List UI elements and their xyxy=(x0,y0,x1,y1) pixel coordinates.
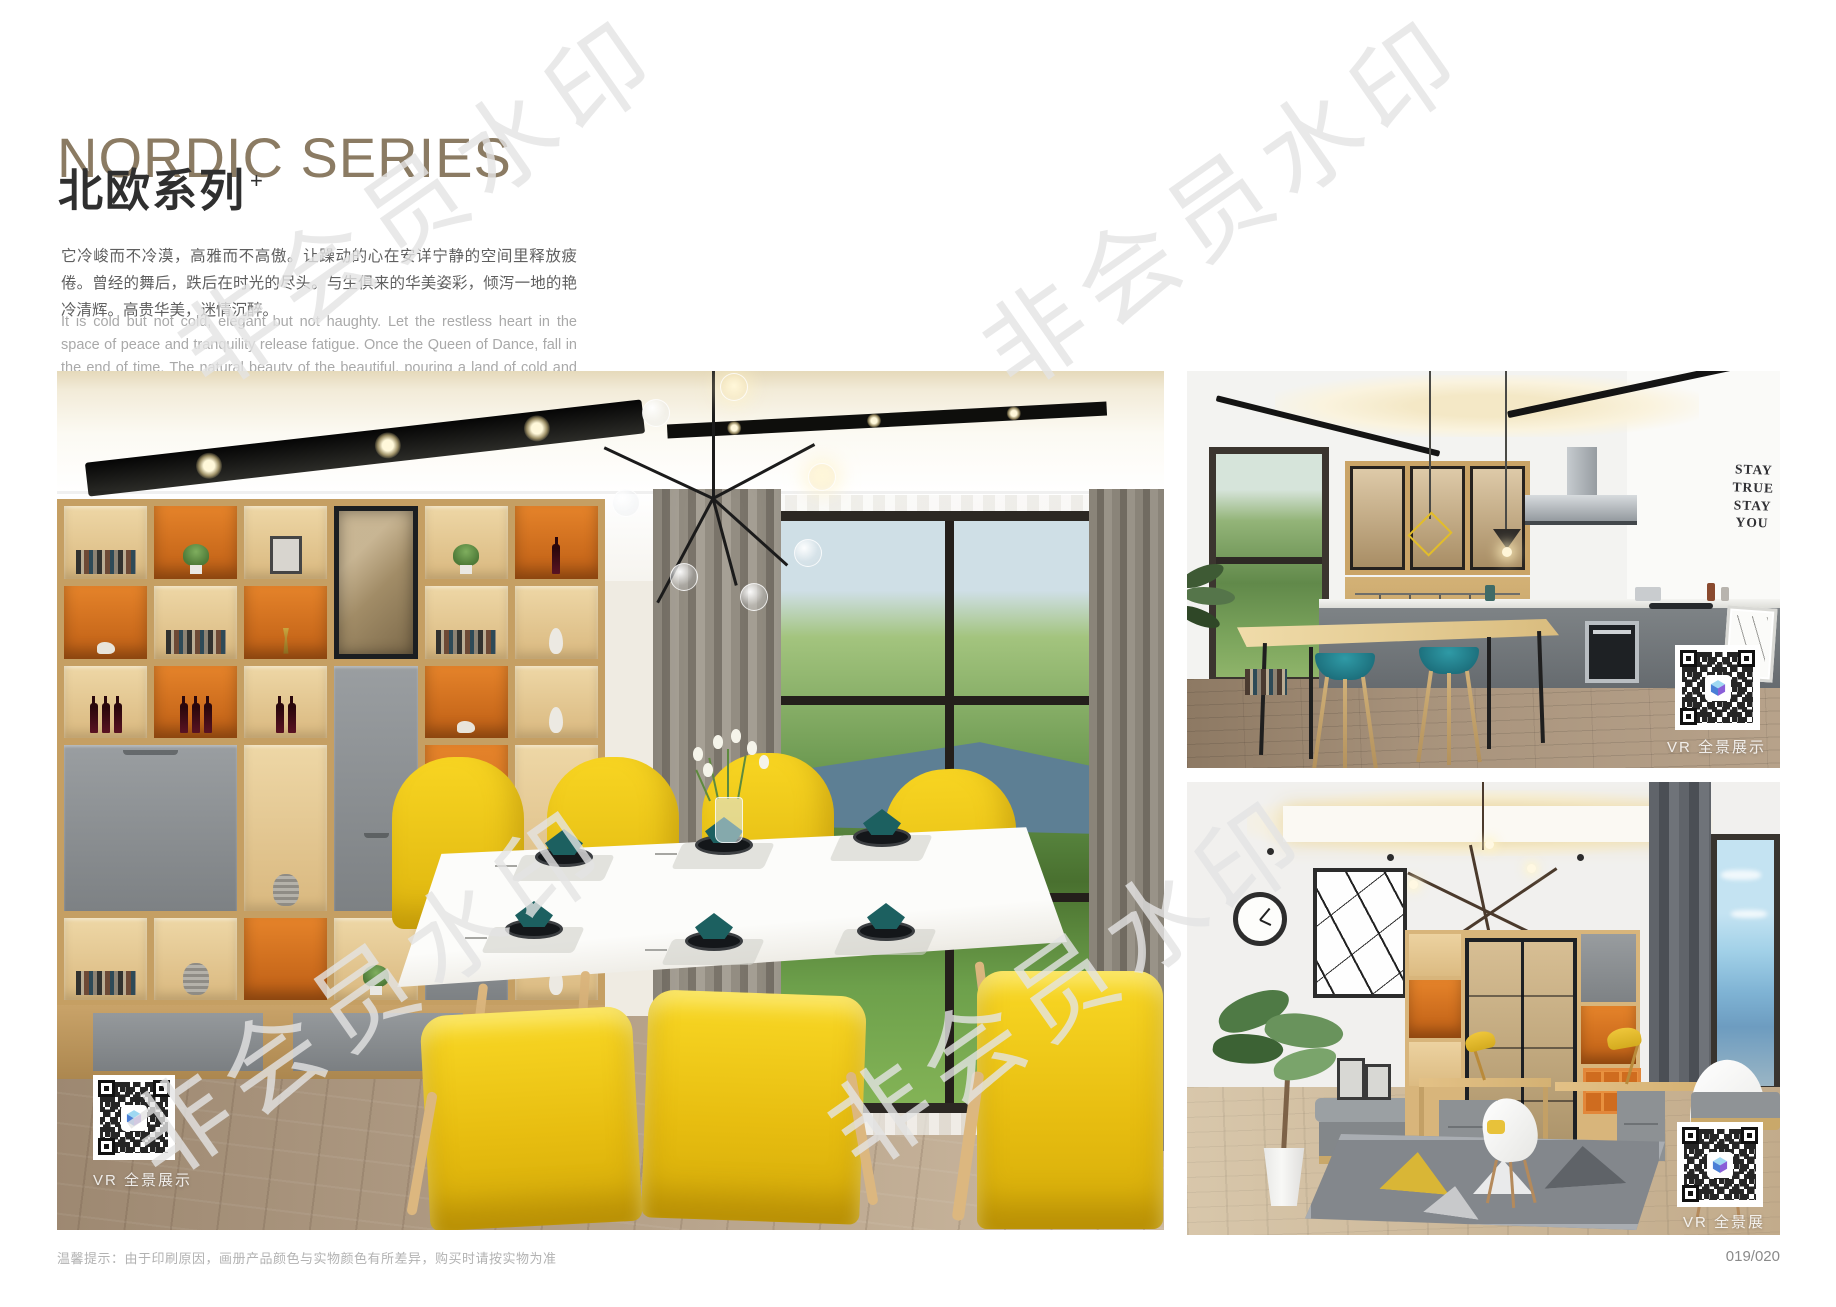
glass-bulb xyxy=(808,463,836,491)
shelf-cell xyxy=(64,506,147,579)
potted-plant xyxy=(453,544,479,566)
watermark: 非会员水印 xyxy=(967,3,1483,406)
desk xyxy=(1555,1082,1707,1091)
counter-jar xyxy=(1721,587,1729,601)
white-flower xyxy=(747,741,757,755)
wine-bottle xyxy=(102,703,110,733)
page-number: 019/020 xyxy=(1690,1248,1780,1265)
table-leg xyxy=(1487,637,1491,749)
qr-finder-icon xyxy=(98,1138,115,1155)
qr-finder-icon xyxy=(98,1080,115,1097)
glass-bulb xyxy=(794,539,822,567)
ceiling-panel xyxy=(1283,806,1677,842)
wall-art-line: STAY xyxy=(1726,496,1779,516)
shelf-cell xyxy=(425,586,508,659)
bulb xyxy=(1527,864,1536,873)
shelf-cell xyxy=(425,506,508,579)
vr-qr-code xyxy=(1677,1122,1763,1207)
white-flower xyxy=(703,763,713,777)
vr-qr-code xyxy=(93,1075,175,1160)
white-flower xyxy=(731,729,741,743)
spotlight xyxy=(1267,848,1274,855)
vr-cube-icon xyxy=(121,1105,147,1131)
cooktop xyxy=(1649,603,1713,609)
shelf-cell xyxy=(64,918,147,1000)
dark-gray-curtain xyxy=(1649,782,1711,1094)
shelf-cell xyxy=(1409,934,1461,976)
clock-hand xyxy=(1260,919,1272,926)
bulb xyxy=(1409,880,1418,889)
vr-caption: VR 全景展示 xyxy=(1667,736,1766,757)
trophy-decor xyxy=(281,628,291,654)
shelf-cell xyxy=(515,666,598,739)
glass-display-cabinet xyxy=(334,506,417,659)
potted-plant xyxy=(363,965,389,987)
wall-clock xyxy=(1233,892,1287,946)
photo-kitchen: STAY TRUE STAY YOU xyxy=(1187,371,1780,768)
yellow-armchair xyxy=(977,971,1163,1229)
shelf-cell xyxy=(244,918,327,1000)
wine-bottle xyxy=(204,703,212,733)
cabinet-shelf xyxy=(1469,995,1573,997)
photo-frame xyxy=(270,536,302,574)
books xyxy=(76,550,136,574)
spotlight xyxy=(1577,854,1584,861)
flower-stem xyxy=(727,749,729,799)
wall-art-line: STAY xyxy=(1728,460,1780,480)
qr-finder-icon xyxy=(1741,1127,1758,1144)
books xyxy=(166,630,226,654)
shelf-cell xyxy=(154,586,237,659)
wine-bottle xyxy=(288,703,296,733)
geometric-rug xyxy=(1305,1134,1665,1230)
qr-finder-icon xyxy=(1680,650,1697,667)
subtitle-plus: + xyxy=(250,168,265,193)
wine-bottle xyxy=(114,703,122,733)
shelf-cell xyxy=(425,666,508,739)
rug-triangle xyxy=(1542,1143,1627,1189)
shelf-books xyxy=(1245,669,1287,695)
white-flower xyxy=(759,755,769,769)
glass-bulb xyxy=(720,373,748,401)
white-flower xyxy=(693,747,703,761)
cutlery xyxy=(655,853,677,855)
qr-finder-icon xyxy=(153,1080,170,1097)
shelf-cell xyxy=(244,745,327,910)
glass-cabinet-door xyxy=(1470,466,1525,570)
glass-bulb xyxy=(740,583,768,611)
glass-cabinet-door xyxy=(1350,466,1405,570)
glass-bulb xyxy=(670,563,698,591)
white-flower xyxy=(713,735,723,749)
shelf-cell xyxy=(154,666,237,739)
yellow-cushion xyxy=(1487,1120,1505,1134)
yellow-dining-chair xyxy=(420,1006,643,1230)
glass-bulb xyxy=(642,399,670,427)
white-vase xyxy=(549,707,563,733)
catalog-page: NORDIC SERIES 北欧系列+ 它冷峻而不冷漠，高雅而不高傲。让躁动的心… xyxy=(0,0,1836,1307)
cloud xyxy=(1731,910,1767,918)
pendant-lamp xyxy=(1493,529,1521,549)
wine-bottle xyxy=(90,703,98,733)
study-window xyxy=(1711,834,1780,1092)
page-subtitle: 北欧系列+ xyxy=(58,168,265,213)
qr-finder-icon xyxy=(1682,1185,1699,1202)
gray-cabinet-door xyxy=(64,745,237,910)
shelf-cell xyxy=(244,666,327,739)
cutlery xyxy=(645,949,667,951)
shelf-cell xyxy=(515,506,598,579)
white-vase xyxy=(549,628,563,654)
ceramic-jar xyxy=(273,874,299,906)
leaning-frame xyxy=(1365,1064,1391,1100)
qr-finder-icon xyxy=(1738,650,1755,667)
orange-shelf-cell xyxy=(1409,980,1461,1038)
stool-leg xyxy=(1343,679,1347,768)
pendant-cord xyxy=(1429,371,1431,519)
wine-bottle xyxy=(276,703,284,733)
built-in-oven xyxy=(1585,621,1639,683)
leaning-frame xyxy=(1337,1058,1365,1100)
range-hood-chimney xyxy=(1567,447,1597,497)
lamp-bulb xyxy=(1502,547,1512,557)
cutlery xyxy=(495,865,517,867)
decor-ornament xyxy=(97,642,115,654)
window-mullion xyxy=(1216,557,1322,564)
chandelier xyxy=(612,371,852,621)
wine-bottle xyxy=(552,544,560,574)
photo-dining-room: VR 全景展示 xyxy=(57,371,1164,1230)
spotlight xyxy=(1387,854,1394,861)
spotlight xyxy=(522,414,551,443)
shelf-cell xyxy=(154,918,237,1000)
books xyxy=(436,630,496,654)
pendant-cord xyxy=(1505,371,1507,529)
shelf-cell xyxy=(515,586,598,659)
range-hood xyxy=(1525,495,1637,525)
yellow-dining-chair xyxy=(641,989,867,1224)
cutlery xyxy=(465,937,487,939)
shelf-cell xyxy=(64,666,147,739)
wall-art-line: YOU xyxy=(1726,514,1779,534)
table-leg xyxy=(1309,647,1313,759)
spotlight xyxy=(867,413,882,428)
chandelier-stem xyxy=(712,371,715,499)
vr-cube-icon xyxy=(1707,1152,1733,1178)
potted-plant xyxy=(183,544,209,566)
vr-caption: VR 全景展示 xyxy=(1683,1211,1780,1235)
subtitle-text: 北欧系列 xyxy=(58,165,246,216)
spotlight xyxy=(373,431,402,460)
abstract-wall-art xyxy=(1313,868,1407,998)
counter-bottle xyxy=(1707,583,1715,601)
rug-triangle xyxy=(1379,1149,1452,1195)
books xyxy=(76,971,136,995)
qr-finder-icon xyxy=(1680,708,1697,725)
teal-napkin xyxy=(515,901,553,927)
wine-bottle xyxy=(180,703,188,733)
shelf-cell xyxy=(154,506,237,579)
ceramic-jar xyxy=(183,963,209,995)
cooking-pot xyxy=(1635,587,1661,601)
counter-bottle xyxy=(1485,585,1495,601)
chandelier-arm xyxy=(712,443,815,500)
gray-cabinet xyxy=(1581,934,1636,1002)
chandelier-stem xyxy=(1482,782,1484,850)
qr-finder-icon xyxy=(1682,1127,1699,1144)
vr-caption: VR 全景展示 xyxy=(93,1169,192,1190)
cloud xyxy=(1721,870,1761,880)
glass-bulb xyxy=(612,489,640,517)
teal-napkin xyxy=(867,903,905,929)
crown-molding xyxy=(57,491,1164,494)
teal-napkin xyxy=(545,829,583,855)
print-disclaimer: 温馨提示：由于印刷原因，画册产品颜色与实物颜色有所差异，购买时请按实物为准 xyxy=(57,1248,557,1267)
decor-ornament xyxy=(457,721,475,733)
photo-study-room: VR 全景展示 xyxy=(1187,782,1780,1235)
spotlight xyxy=(1006,406,1021,421)
gray-cabinet-door xyxy=(93,1013,263,1071)
shelf-cell xyxy=(64,586,147,659)
wall-art-text: STAY TRUE STAY YOU xyxy=(1726,460,1780,533)
stool-leg xyxy=(1447,673,1451,765)
bulb xyxy=(1485,840,1494,849)
glass-vase xyxy=(715,797,743,843)
shelf-cell xyxy=(244,586,327,659)
wine-bottle xyxy=(192,703,200,733)
shelf-cell xyxy=(244,506,327,579)
vr-cube-icon xyxy=(1705,675,1731,701)
spotlight xyxy=(195,451,224,480)
wall-art-line: TRUE xyxy=(1727,478,1780,498)
vr-qr-code xyxy=(1675,645,1760,730)
teal-napkin xyxy=(695,913,733,939)
